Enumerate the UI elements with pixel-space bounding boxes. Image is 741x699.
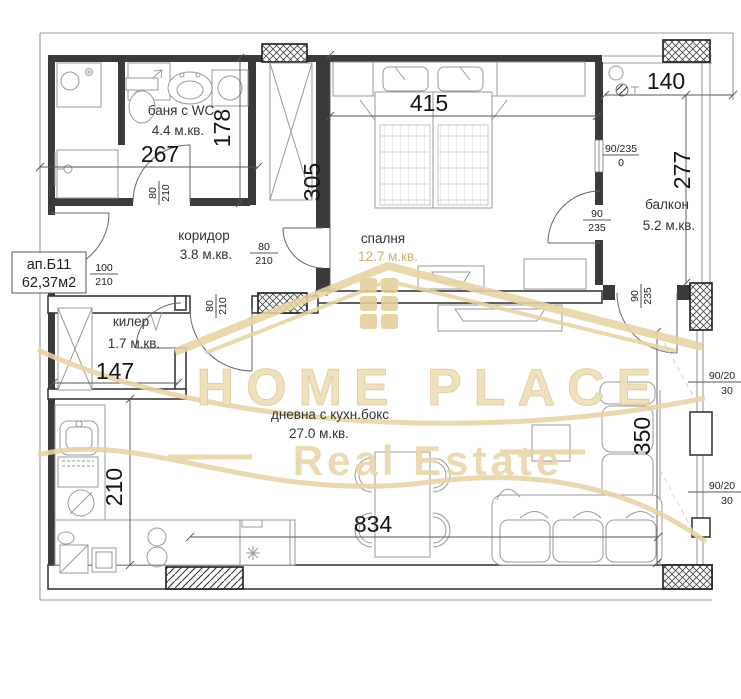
balcony-window-sill: 0: [618, 157, 624, 169]
dim-bedroom-depth: 305: [299, 163, 325, 201]
living-name: дневна с кухн.бокс: [271, 407, 389, 422]
corridor-area: 3.8 м.кв.: [180, 247, 232, 262]
bathroom-area: 4.4 м.кв.: [152, 123, 204, 138]
floor-plan: HOME PLACE Real Estate баня с WC 4.4 м.к…: [0, 0, 741, 699]
storage-area: 1.7 м.кв.: [108, 336, 160, 351]
bath-door-w: 80: [147, 187, 159, 199]
right-window-bottom-w: 90/20: [709, 480, 735, 492]
right-window-top-h: 30: [721, 385, 733, 397]
dim-bath-width: 267: [141, 141, 179, 167]
dim-storage-width: 147: [96, 358, 134, 384]
balcony-name: балкон: [645, 197, 689, 212]
watermark-subtitle: Real Estate: [293, 437, 563, 484]
right-window-bottom-h: 30: [721, 495, 733, 507]
dim-living-window: 350: [629, 417, 655, 455]
living-balcony-door-w: 90: [629, 290, 641, 302]
floor-plan-drawing: HOME PLACE Real Estate баня с WC 4.4 м.к…: [0, 0, 741, 699]
entrance-door-h: 210: [95, 276, 113, 288]
dim-bedroom-width: 415: [410, 90, 448, 116]
storage-name: килер: [113, 314, 149, 329]
dim-bath-depth: 178: [209, 109, 235, 147]
dim-kitchen-depth: 210: [101, 468, 127, 506]
living-balcony-door-h: 235: [642, 287, 654, 305]
bedroom-name: спалня: [361, 231, 405, 246]
bath-door-h: 210: [160, 184, 172, 202]
bedroom-door-w: 80: [258, 241, 270, 253]
unit-label-box: ап.Б11 62,37м2: [12, 252, 86, 293]
unit-number: ап.Б11: [27, 257, 72, 273]
kitchen-counter: [55, 405, 295, 573]
balcony-window-size: 90/235: [605, 143, 637, 155]
living-area: 27.0 м.кв.: [289, 426, 349, 441]
bedroom-balcony-door-w: 90: [591, 208, 603, 220]
right-window-top-w: 90/20: [709, 370, 735, 382]
unit-area: 62,37м2: [22, 275, 76, 291]
dim-balcony-depth: 277: [669, 151, 695, 189]
bedroom-bed: [333, 62, 585, 208]
entrance-door-w: 100: [95, 262, 113, 274]
bathroom-name: баня с WC: [148, 103, 215, 118]
dim-balcony-width: 140: [647, 68, 685, 94]
living-door-h: 210: [217, 297, 229, 315]
watermark-title: HOME PLACE: [197, 359, 664, 417]
bedroom-door-h: 210: [255, 255, 273, 267]
corridor-name: коридор: [178, 228, 230, 243]
dim-living-width: 834: [354, 511, 393, 537]
bedroom-area: 12.7 м.кв.: [358, 249, 418, 264]
balcony-area: 5.2 м.кв.: [643, 218, 695, 233]
living-door-w: 80: [204, 300, 216, 312]
bedroom-balcony-door-h: 235: [588, 222, 606, 234]
